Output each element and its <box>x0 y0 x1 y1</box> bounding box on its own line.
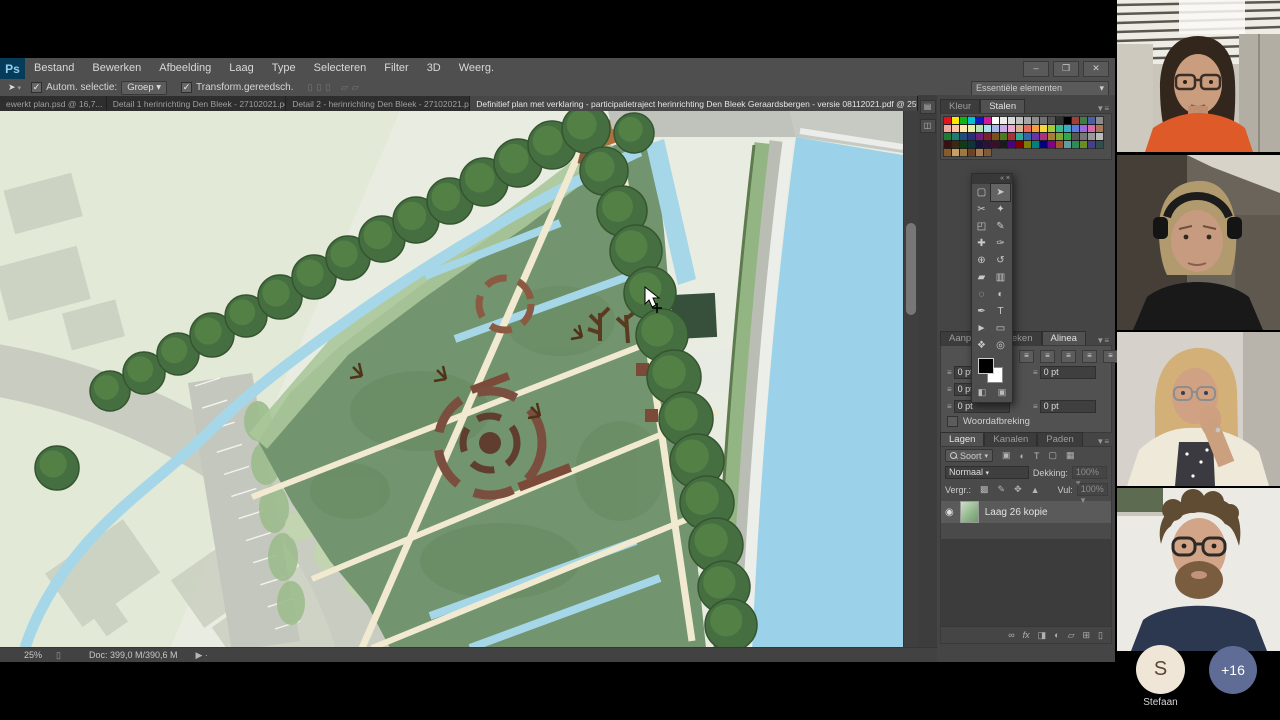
transform-controls-checkbox[interactable]: ✓ <box>181 82 192 93</box>
menu-item-3d[interactable]: 3D <box>418 58 450 79</box>
color-swatch[interactable] <box>1064 117 1071 124</box>
participant-video-3[interactable] <box>1117 332 1280 486</box>
layer-mask-icon[interactable]: ◨ <box>1038 630 1047 641</box>
color-swatch[interactable] <box>992 125 999 132</box>
color-swatch[interactable] <box>952 125 959 132</box>
color-swatch[interactable] <box>960 125 967 132</box>
menu-bar: Ps BestandBewerkenAfbeeldingLaagTypeSele… <box>0 58 1115 80</box>
color-swatch[interactable] <box>1016 125 1023 132</box>
color-swatch[interactable] <box>1088 133 1095 140</box>
color-swatch[interactable] <box>984 149 991 156</box>
fill-label: Vul: <box>1058 485 1073 495</box>
color-swatch[interactable] <box>1040 141 1047 148</box>
color-swatch[interactable] <box>1048 117 1055 124</box>
delete-layer-icon[interactable]: ▯ <box>1098 630 1103 641</box>
avatar-initial: S <box>1154 658 1167 681</box>
lock-label: Vergr.: <box>945 485 971 495</box>
color-swatch[interactable] <box>1000 141 1007 148</box>
close-button[interactable]: ✕ <box>1083 61 1109 77</box>
group-dropdown[interactable]: Groep ▾ <box>121 81 167 95</box>
color-swatch[interactable] <box>952 149 959 156</box>
lock-pixels-icon[interactable]: ✎ <box>998 484 1006 495</box>
color-swatch[interactable] <box>1056 125 1063 132</box>
more-participants-badge[interactable]: +16 <box>1209 646 1257 694</box>
tools-palette-header[interactable]: « × <box>972 174 1012 184</box>
color-swatch[interactable] <box>1088 141 1095 148</box>
color-swatch[interactable] <box>1096 117 1103 124</box>
color-swatch[interactable] <box>976 117 983 124</box>
participant-video-4[interactable] <box>1117 488 1280 651</box>
tab-kanalen[interactable]: Kanalen <box>984 432 1037 446</box>
color-swatch[interactable] <box>1016 133 1023 140</box>
layer-row[interactable]: ◉ Laag 26 kopie <box>941 501 1111 523</box>
document-canvas[interactable] <box>0 111 903 648</box>
clone-stamp-tool-icon[interactable]: ⊕ <box>972 252 991 269</box>
panel-menu-icon[interactable]: ▼≡ <box>1096 437 1112 446</box>
color-swatch[interactable] <box>944 117 951 124</box>
align-button-2[interactable]: ≡ <box>1040 350 1055 363</box>
color-swatch[interactable] <box>1016 141 1023 148</box>
zoom-level[interactable]: 25% <box>24 650 42 660</box>
transform-controls-label: Transform.gereedsch. <box>196 82 293 93</box>
color-swatch[interactable] <box>976 141 983 148</box>
color-swatch[interactable] <box>1000 133 1007 140</box>
color-swatch[interactable] <box>1072 141 1079 148</box>
color-swatch[interactable] <box>984 117 991 124</box>
search-icon <box>950 452 957 459</box>
color-swatch[interactable] <box>1056 133 1063 140</box>
color-swatch[interactable] <box>1000 125 1007 132</box>
color-swatch[interactable] <box>1008 141 1015 148</box>
gradient-tool-icon[interactable]: ▥ <box>991 269 1010 286</box>
new-group-icon[interactable]: ▱ <box>1068 630 1075 641</box>
color-swatch[interactable] <box>968 141 975 148</box>
tool-preset-caret[interactable]: ▾ <box>18 84 22 92</box>
color-swatch[interactable] <box>1008 133 1015 140</box>
color-swatch[interactable] <box>1080 141 1087 148</box>
document-tab-title: ewerkt plan.psd @ 16,7... <box>6 99 103 109</box>
color-swatch[interactable] <box>1008 117 1015 124</box>
menu-item-selecteren[interactable]: Selecteren <box>305 58 376 79</box>
menu-item-type[interactable]: Type <box>263 58 305 79</box>
color-swatch[interactable] <box>1032 117 1039 124</box>
swatches-panel: Kleur Stalen ▼≡ <box>940 99 1112 160</box>
avatar[interactable]: S <box>1136 645 1185 694</box>
layers-panel: LagenKanalenPaden▼≡ Soort▾ ▣ ◐ T ▢ ▦ Nor… <box>940 432 1112 644</box>
color-swatch[interactable] <box>1064 141 1071 148</box>
brush-tool-icon[interactable]: ✑ <box>991 235 1010 252</box>
tab-paden[interactable]: Paden <box>1037 432 1082 446</box>
participant-3-picture <box>1117 332 1280 486</box>
align-button-5[interactable]: ≡ <box>1103 350 1118 363</box>
fill-value[interactable]: 100% ▾ <box>1077 483 1108 496</box>
color-swatch[interactable] <box>1096 133 1103 140</box>
align-button-1[interactable]: ≡ <box>1019 350 1034 363</box>
layer-filter-dropdown[interactable]: Soort▾ <box>945 449 993 462</box>
history-panel-icon[interactable]: ▤ <box>920 100 936 114</box>
color-swatch[interactable] <box>1088 125 1095 132</box>
document-tab-2[interactable]: Detail 1 herinrichting Den Bleek - 27102… <box>107 96 286 111</box>
filter-shape-icon[interactable]: ▢ <box>1048 450 1057 461</box>
color-swatch[interactable] <box>944 149 951 156</box>
dodge-tool-icon[interactable]: ◐ <box>991 286 1010 303</box>
crop-tool-icon[interactable]: ◰ <box>972 218 991 235</box>
chevron-down-icon: ▾ <box>1099 82 1104 95</box>
opacity-value[interactable]: 100% ▾ <box>1072 466 1107 479</box>
status-arrow-icon[interactable]: ▶ ∙ <box>196 650 208 661</box>
document-icon: ▯ <box>56 650 61 661</box>
color-swatch[interactable] <box>1008 125 1015 132</box>
document-tab-bar: ewerkt plan.psd @ 16,7...×Detail 1 herin… <box>0 96 918 111</box>
blur-tool-icon[interactable]: ◌ <box>972 286 991 303</box>
tab-stalen[interactable]: Stalen <box>980 99 1025 113</box>
layer-style-fx-icon[interactable]: fx <box>1023 630 1030 640</box>
color-swatch[interactable] <box>960 141 967 148</box>
tools-palette: « × ▢➤✂✦◰✎✚✑⊕↺▰▥◌◐✒T►▭❖◎ ◧ ▣ <box>971 173 1013 403</box>
vertical-scrollbar[interactable] <box>903 111 919 648</box>
color-swatch[interactable] <box>1072 125 1079 132</box>
filter-type-icon[interactable]: T <box>1034 451 1040 461</box>
participant-2-picture <box>1117 155 1280 330</box>
color-swatch[interactable] <box>944 125 951 132</box>
park-plan-artwork <box>0 111 903 648</box>
document-tab-4[interactable]: Definitief plan met verklaring - partici… <box>470 96 918 111</box>
color-swatch[interactable] <box>1048 125 1055 132</box>
scrollbar-thumb[interactable] <box>906 223 916 315</box>
hand-tool-icon[interactable]: ❖ <box>972 337 991 354</box>
participant-video-2[interactable] <box>1117 155 1280 330</box>
color-swatch[interactable] <box>968 133 975 140</box>
zoom-tool-icon[interactable]: ◎ <box>991 337 1010 354</box>
lasso-tool-icon[interactable]: ✂ <box>972 201 991 218</box>
menu-item-weerg[interactable]: Weerg. <box>450 58 503 79</box>
color-swatch[interactable] <box>1080 133 1087 140</box>
photoshop-logo: Ps <box>0 58 25 79</box>
swatch-grid <box>940 113 1112 160</box>
screen-mode-icon[interactable]: ▣ <box>998 387 1007 398</box>
color-swatch[interactable] <box>1072 133 1079 140</box>
color-swatch[interactable] <box>984 133 991 140</box>
tab-alinea[interactable]: Alinea <box>1042 331 1086 345</box>
color-swatch[interactable] <box>1064 133 1071 140</box>
color-swatch[interactable] <box>984 125 991 132</box>
lock-transparency-icon[interactable]: ▩ <box>980 484 989 495</box>
workspace-switcher[interactable]: Essentiële elementen▾ <box>971 81 1109 96</box>
document-tab-title: Definitief plan met verklaring - partici… <box>476 99 918 109</box>
document-tab-1[interactable]: ewerkt plan.psd @ 16,7...× <box>0 96 107 111</box>
screen: { "colors": { "ps_chrome": "#4f4f4f", "c… <box>0 0 1280 720</box>
menu-items: BestandBewerkenAfbeeldingLaagTypeSelecte… <box>25 58 503 79</box>
color-swatch[interactable] <box>992 133 999 140</box>
panel-menu-icon[interactable]: ▼≡ <box>1096 104 1112 113</box>
filter-pixel-icon[interactable]: ▣ <box>1002 450 1011 461</box>
path-selection-tool-icon[interactable]: ► <box>972 320 991 337</box>
alignment-buttons: ≡≡≡≡≡ <box>1019 350 1118 363</box>
menu-item-laag[interactable]: Laag <box>220 58 262 79</box>
layers-empty-area <box>941 539 1111 627</box>
color-swatch[interactable] <box>1040 133 1047 140</box>
paragraph-panel: Aanpas...TekenAlinea▼≡ ≡≡≡≡≡ ≡ 0 pt ≡ 0 … <box>940 331 1112 433</box>
color-swatch[interactable] <box>944 141 951 148</box>
menu-item-bewerken[interactable]: Bewerken <box>83 58 150 79</box>
color-swatch[interactable] <box>1032 141 1039 148</box>
color-swatch[interactable] <box>1000 117 1007 124</box>
minimize-button[interactable]: – <box>1023 61 1049 77</box>
color-swatch[interactable] <box>1048 133 1055 140</box>
filter-adjustment-icon[interactable]: ◐ <box>1020 451 1025 461</box>
color-swatch[interactable] <box>1032 133 1039 140</box>
color-swatch[interactable] <box>952 141 959 148</box>
move-tool-icon[interactable]: ➤ <box>8 82 16 93</box>
color-swatch[interactable] <box>1080 125 1087 132</box>
type-tool-icon[interactable]: T <box>991 303 1010 320</box>
document-tab-title: Detail 1 herinrichting Den Bleek - 27102… <box>113 99 286 109</box>
align-button-3[interactable]: ≡ <box>1061 350 1076 363</box>
eyedropper-tool-icon[interactable]: ✎ <box>991 218 1010 235</box>
color-swatch[interactable] <box>1096 125 1103 132</box>
align-icons: ▯▯▯ ▱▱ <box>308 82 363 93</box>
move-tool-icon[interactable]: ➤ <box>991 184 1010 201</box>
collapsed-panel-strip: ▤ ◫ <box>918 95 937 662</box>
opacity-label: Dekking: <box>1033 468 1068 478</box>
color-swatch[interactable] <box>976 133 983 140</box>
menu-item-afbeelding[interactable]: Afbeelding <box>150 58 220 79</box>
quick-mask-icon[interactable]: ◧ <box>978 387 987 398</box>
color-swatch[interactable] <box>1064 125 1071 132</box>
properties-panel-icon[interactable]: ◫ <box>920 119 936 133</box>
color-swatch[interactable] <box>1056 117 1063 124</box>
pen-tool-icon[interactable]: ✒ <box>972 303 991 320</box>
color-swatch[interactable] <box>1024 125 1031 132</box>
document-tab-title: Detail 2 - herinrichting Den Bleek - 271… <box>292 99 470 109</box>
foreground-color-chip[interactable] <box>978 358 994 374</box>
color-swatch[interactable] <box>984 141 991 148</box>
status-bar: 25% ▯ Doc: 399,0 M/390,6 M ▶ ∙ <box>0 647 937 662</box>
color-swatch[interactable] <box>1088 117 1095 124</box>
history-brush-tool-icon[interactable]: ↺ <box>991 252 1010 269</box>
color-swatch[interactable] <box>1024 133 1031 140</box>
participant-1-picture <box>1117 0 1280 152</box>
color-swatch[interactable] <box>944 133 951 140</box>
color-swatch[interactable] <box>1032 125 1039 132</box>
color-swatch[interactable] <box>992 117 999 124</box>
panel-dock: Kleur Stalen ▼≡ Aanpas...TekenAlinea▼≡ ≡… <box>937 95 1115 662</box>
document-tab-3[interactable]: Detail 2 - herinrichting Den Bleek - 271… <box>286 96 470 111</box>
layers-panel-footer: ∞ fx ◨ ◐ ▱ ⊞ ▯ <box>941 626 1111 643</box>
color-swatch[interactable] <box>960 133 967 140</box>
color-swatch[interactable] <box>1056 141 1063 148</box>
eraser-tool-icon[interactable]: ▰ <box>972 269 991 286</box>
hyphenation-label: Woordafbreking <box>963 416 1030 427</box>
color-swatch[interactable] <box>1016 117 1023 124</box>
color-chips <box>976 356 1012 386</box>
color-swatch[interactable] <box>1040 125 1047 132</box>
color-swatch[interactable] <box>968 149 975 156</box>
link-layers-icon[interactable]: ∞ <box>1008 630 1014 640</box>
tab-kleur[interactable]: Kleur <box>940 99 980 113</box>
window-controls: – ❐ ✕ <box>1023 61 1109 77</box>
shape-tool-icon[interactable]: ▭ <box>991 320 1010 337</box>
hyphenation-checkbox[interactable] <box>947 416 958 427</box>
color-swatch[interactable] <box>1048 141 1055 148</box>
color-swatch[interactable] <box>968 125 975 132</box>
rectangular-marquee-tool-icon[interactable]: ▢ <box>972 184 991 201</box>
color-swatch[interactable] <box>976 149 983 156</box>
color-swatch[interactable] <box>1096 141 1103 148</box>
new-layer-icon[interactable]: ⊞ <box>1083 630 1091 641</box>
layer-thumbnail[interactable] <box>960 501 979 523</box>
color-swatch[interactable] <box>960 149 967 156</box>
color-swatch[interactable] <box>1040 117 1047 124</box>
restore-button[interactable]: ❐ <box>1053 61 1079 77</box>
lock-all-icon[interactable]: ▲ <box>1031 485 1040 495</box>
color-swatch[interactable] <box>992 141 999 148</box>
lock-position-icon[interactable]: ✥ <box>1014 484 1022 495</box>
menu-item-filter[interactable]: Filter <box>375 58 417 79</box>
space-after-field[interactable]: 0 pt <box>1040 400 1096 413</box>
color-swatch[interactable] <box>960 117 967 124</box>
color-swatch[interactable] <box>968 117 975 124</box>
photoshop-window: Ps BestandBewerkenAfbeeldingLaagTypeSele… <box>0 58 1115 662</box>
indent-right-field[interactable]: 0 pt <box>1040 366 1096 379</box>
color-swatch[interactable] <box>952 117 959 124</box>
avatar-name: Stefaan <box>1136 697 1185 708</box>
layer-visibility-eye-icon[interactable]: ◉ <box>945 507 954 518</box>
color-swatch[interactable] <box>976 125 983 132</box>
auto-select-label: Autom. selectie: <box>46 82 117 93</box>
healing-brush-tool-icon[interactable]: ✚ <box>972 235 991 252</box>
tool-grid: ▢➤✂✦◰✎✚✑⊕↺▰▥◌◐✒T►▭❖◎ <box>972 184 1012 354</box>
auto-select-checkbox[interactable]: ✓ <box>31 82 42 93</box>
color-swatch[interactable] <box>1024 141 1031 148</box>
participant-4-picture <box>1117 488 1280 651</box>
blend-mode-dropdown[interactable]: Normaal ▾ <box>945 466 1029 479</box>
color-swatch[interactable] <box>1072 117 1079 124</box>
color-swatch[interactable] <box>1024 117 1031 124</box>
menu-item-bestand[interactable]: Bestand <box>25 58 83 79</box>
panel-menu-icon[interactable]: ▼≡ <box>1096 336 1112 345</box>
filter-smartobject-icon[interactable]: ▦ <box>1066 450 1075 461</box>
doc-size-info: Doc: 399,0 M/390,6 M <box>89 650 178 660</box>
quick-selection-tool-icon[interactable]: ✦ <box>991 201 1010 218</box>
color-swatch[interactable] <box>952 133 959 140</box>
color-swatch[interactable] <box>1080 117 1087 124</box>
align-button-4[interactable]: ≡ <box>1082 350 1097 363</box>
participant-video-1[interactable] <box>1117 0 1280 152</box>
layer-name[interactable]: Laag 26 kopie <box>985 507 1048 518</box>
tab-lagen[interactable]: Lagen <box>940 432 984 446</box>
adjustment-layer-icon[interactable]: ◐ <box>1054 630 1059 640</box>
